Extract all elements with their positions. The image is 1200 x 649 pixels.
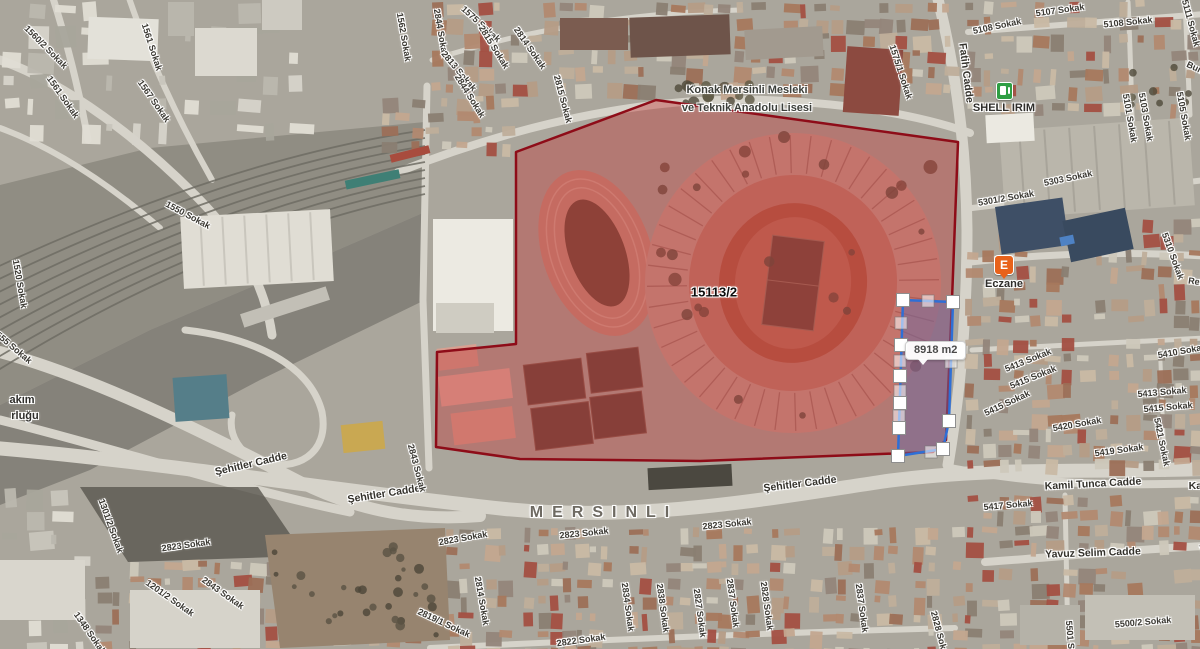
fuel-station-icon[interactable] — [996, 82, 1013, 100]
midpoint-handle[interactable] — [894, 385, 906, 397]
vertex-handle[interactable] — [947, 296, 960, 309]
vertex-handle[interactable] — [943, 415, 956, 428]
area-tooltip: 8918 m2 — [905, 341, 966, 360]
vertex-handle[interactable] — [897, 294, 910, 307]
vertex-handle[interactable] — [894, 370, 907, 383]
pharmacy-icon[interactable]: E — [994, 255, 1014, 275]
vertex-handle[interactable] — [893, 422, 906, 435]
vertex-handle[interactable] — [892, 450, 905, 463]
midpoint-handle[interactable] — [893, 410, 905, 422]
midpoint-handle[interactable] — [922, 295, 934, 307]
map-canvas[interactable]: Konak Mersinli Mesleki ve Teknik Anadolu… — [0, 0, 1200, 649]
vertex-handle[interactable] — [937, 443, 950, 456]
vertex-handle[interactable] — [894, 397, 907, 410]
midpoint-handle[interactable] — [925, 446, 937, 458]
midpoint-handle[interactable] — [895, 317, 907, 329]
satellite-imagery — [0, 0, 1200, 649]
